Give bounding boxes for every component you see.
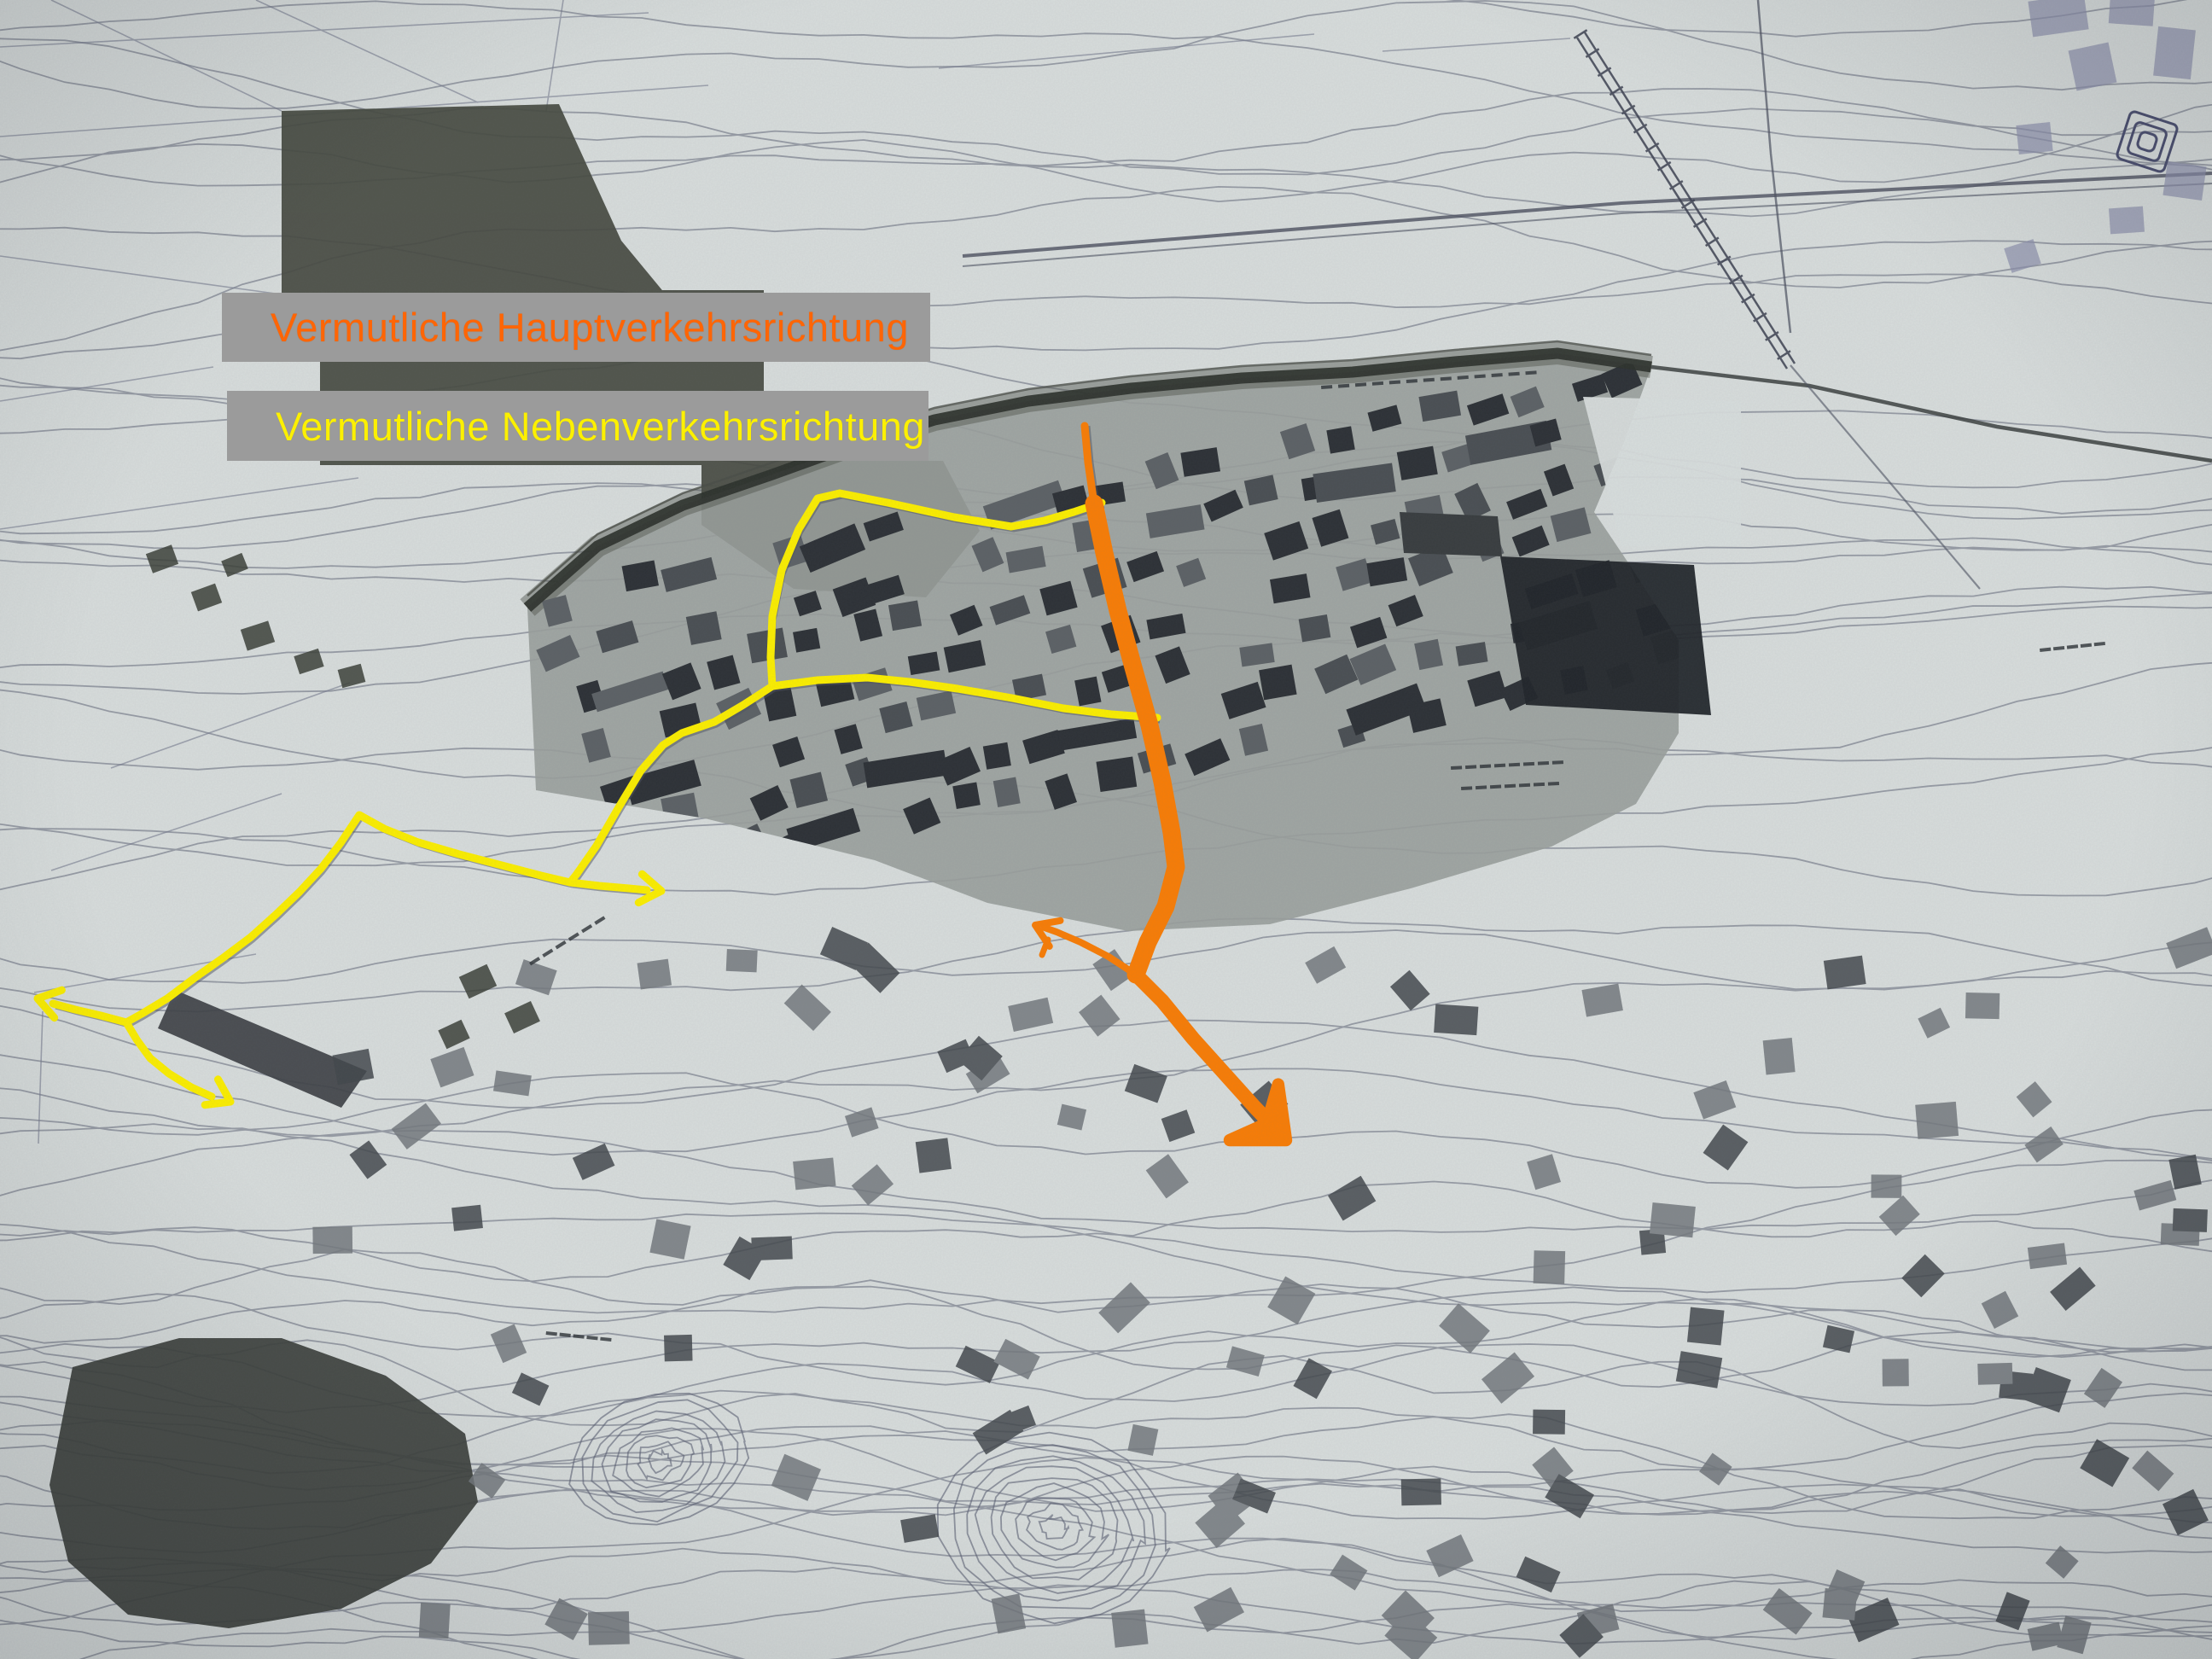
photo-vignette <box>0 0 2212 1659</box>
scanned-traffic-map: { "map": { "description": "Scanned grays… <box>0 0 2212 1659</box>
map-canvas <box>0 0 2212 1659</box>
